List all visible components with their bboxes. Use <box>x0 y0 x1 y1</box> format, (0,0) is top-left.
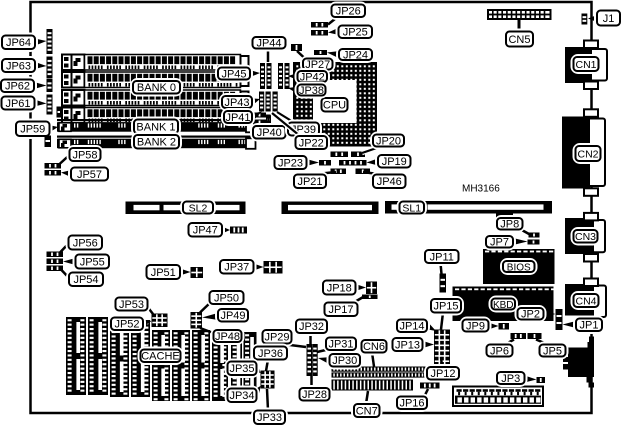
svg-text:JP28: JP28 <box>302 389 327 401</box>
svg-text:JP54: JP54 <box>73 274 98 286</box>
svg-text:JP24: JP24 <box>343 49 368 61</box>
svg-text:JP41: JP41 <box>225 112 250 124</box>
svg-text:CN7: CN7 <box>356 405 378 417</box>
svg-text:SL2: SL2 <box>189 202 208 214</box>
svg-text:JP2: JP2 <box>521 309 540 321</box>
svg-text:SL1: SL1 <box>402 202 421 214</box>
svg-text:JP56: JP56 <box>73 237 98 249</box>
svg-text:JP8: JP8 <box>500 219 519 231</box>
svg-text:JP64: JP64 <box>6 37 31 49</box>
svg-text:JP33: JP33 <box>257 412 282 424</box>
svg-text:J1: J1 <box>603 13 615 25</box>
svg-text:JP40: JP40 <box>257 127 282 139</box>
svg-text:JP36: JP36 <box>258 348 283 360</box>
svg-text:JP38: JP38 <box>299 85 324 97</box>
svg-text:JP57: JP57 <box>77 169 102 181</box>
svg-text:JP62: JP62 <box>5 81 30 93</box>
svg-text:JP55: JP55 <box>80 256 105 268</box>
svg-text:JP17: JP17 <box>328 304 353 316</box>
svg-text:JP48: JP48 <box>215 331 240 343</box>
svg-text:JP31: JP31 <box>328 339 353 351</box>
svg-text:JP9: JP9 <box>466 320 485 332</box>
svg-text:JP5: JP5 <box>543 345 562 357</box>
svg-text:CN3: CN3 <box>575 231 596 243</box>
svg-text:JP45: JP45 <box>221 68 246 80</box>
svg-text:JP1: JP1 <box>580 320 599 332</box>
svg-text:JP6: JP6 <box>490 345 509 357</box>
svg-text:JP19: JP19 <box>382 156 407 168</box>
svg-text:JP52: JP52 <box>114 319 139 331</box>
svg-text:JP22: JP22 <box>299 137 324 149</box>
svg-text:JP30: JP30 <box>332 355 357 367</box>
svg-text:JP11: JP11 <box>430 251 454 263</box>
svg-text:JP32: JP32 <box>299 321 324 333</box>
svg-text:JP59: JP59 <box>20 124 45 136</box>
svg-text:CN5: CN5 <box>508 34 530 46</box>
svg-text:JP46: JP46 <box>377 176 402 188</box>
svg-text:JP50: JP50 <box>214 292 239 304</box>
svg-text:KBD: KBD <box>493 300 514 311</box>
svg-text:JP25: JP25 <box>343 27 368 39</box>
svg-text:JP16: JP16 <box>399 398 424 410</box>
svg-text:JP53: JP53 <box>119 299 144 311</box>
svg-text:CN4: CN4 <box>575 295 596 307</box>
svg-text:JP18: JP18 <box>327 282 352 294</box>
svg-text:JP23: JP23 <box>278 157 303 169</box>
svg-text:CN2: CN2 <box>577 148 598 160</box>
svg-text:JP14: JP14 <box>399 321 424 333</box>
svg-text:JP49: JP49 <box>220 310 245 322</box>
svg-text:BANK 1: BANK 1 <box>136 121 175 133</box>
svg-text:CN6: CN6 <box>363 341 385 353</box>
svg-text:BIOS: BIOS <box>507 262 531 273</box>
svg-text:MH3166: MH3166 <box>462 184 500 195</box>
svg-text:JP34: JP34 <box>229 390 254 402</box>
svg-text:JP12: JP12 <box>430 368 455 380</box>
svg-text:JP63: JP63 <box>6 60 31 72</box>
svg-text:CN1: CN1 <box>575 59 596 71</box>
svg-text:JP26: JP26 <box>336 6 361 18</box>
svg-text:JP58: JP58 <box>72 149 97 161</box>
svg-text:JP13: JP13 <box>395 339 420 351</box>
svg-text:JP44: JP44 <box>256 38 281 50</box>
svg-text:JP20: JP20 <box>376 135 401 147</box>
svg-text:JP61: JP61 <box>5 98 30 110</box>
svg-text:JP29: JP29 <box>264 332 289 344</box>
svg-text:JP51: JP51 <box>151 267 176 279</box>
svg-text:JP35: JP35 <box>229 363 254 375</box>
svg-text:JP37: JP37 <box>224 262 249 274</box>
svg-text:BANK 2: BANK 2 <box>137 137 176 149</box>
svg-text:BANK 0: BANK 0 <box>137 82 176 94</box>
svg-text:CPU: CPU <box>323 100 346 112</box>
svg-text:JP43: JP43 <box>224 97 249 109</box>
svg-text:JP3: JP3 <box>501 373 520 385</box>
svg-text:JP21: JP21 <box>297 176 322 188</box>
svg-text:JP47: JP47 <box>193 225 218 237</box>
svg-text:JP15: JP15 <box>433 301 458 313</box>
svg-text:JP7: JP7 <box>490 237 509 249</box>
svg-text:CACHE: CACHE <box>141 351 180 363</box>
